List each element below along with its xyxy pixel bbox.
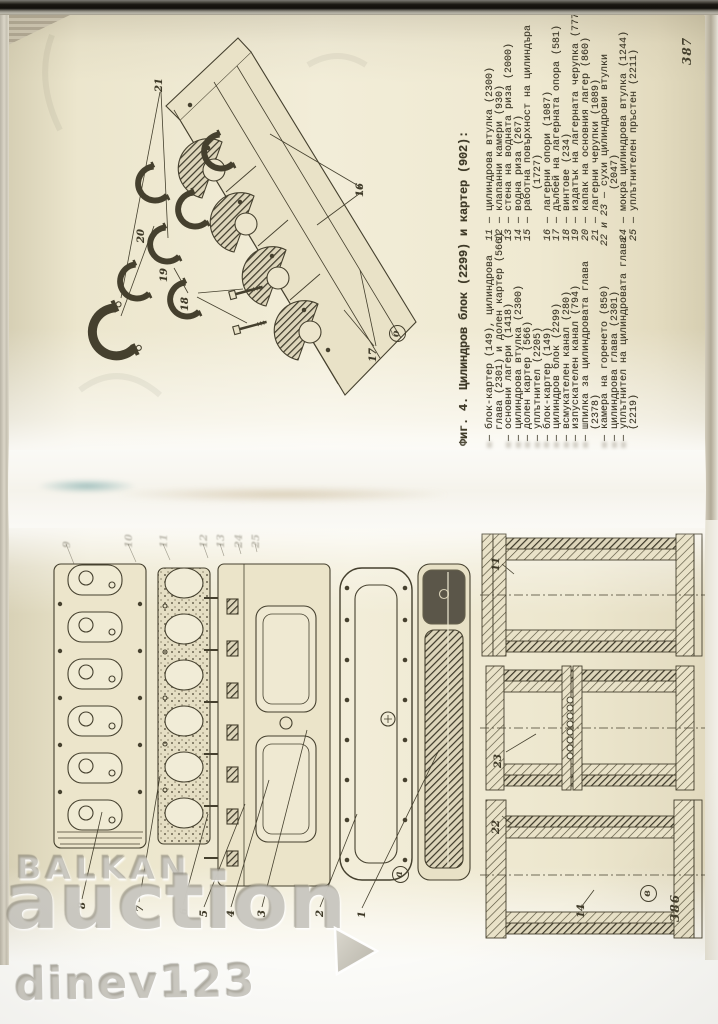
figure-callout: 19 <box>159 268 170 282</box>
legend-line: 22 и 23 — сухи цилиндрови втулки <box>601 13 611 246</box>
figure-callout: 1 <box>357 911 368 918</box>
page-386-content: 87654321 9101112132425 11232214 а в 386 <box>8 528 706 962</box>
figure-callout: 12 <box>199 534 210 548</box>
figure-callout: 24 <box>234 534 245 548</box>
figure-callout: 11 <box>491 557 502 571</box>
book-photo: Фиг. 4. Цилиндров блок (2299) и картер (… <box>0 0 718 1024</box>
figure-callout: 8 <box>77 902 88 909</box>
page-number-386: 386 <box>668 894 682 922</box>
figure-callout: 7 <box>135 905 146 912</box>
page-stack-right-edge <box>705 15 718 520</box>
figure-callout: 23 <box>493 754 504 768</box>
figure-callout: 9 <box>62 541 73 548</box>
subfigure-label-b: б <box>389 325 406 342</box>
figure-callout: 14 <box>576 904 587 918</box>
legend-col-1: — блок-картер (149), цилиндроваглава (23… <box>486 236 640 448</box>
figure-callout: 25 <box>251 534 262 548</box>
page-stack-right-edge-lower <box>705 520 718 960</box>
figure-callout: 20 <box>136 229 147 243</box>
figure-callout: 11 <box>159 534 170 548</box>
book-page-387: Фиг. 4. Цилиндров блок (2299) и картер (… <box>8 13 706 450</box>
figure-callout: 6 <box>179 908 190 915</box>
book-page-386: 87654321 9101112132425 11232214 а в 386 <box>8 528 706 962</box>
legend-col-2: 11 — цилиндрова втулка (2300)12 — клапан… <box>486 13 640 246</box>
figure-callout: 17 <box>368 348 379 362</box>
page-fold-glare <box>8 438 706 540</box>
figure-callout: 22 <box>491 820 502 834</box>
figure-callout: 21 <box>154 78 165 92</box>
figure-callout: 10 <box>124 534 135 548</box>
figure-callout: 3 <box>257 910 268 917</box>
page-number-387: 387 <box>680 37 694 65</box>
figure-callout: 2 <box>315 910 326 917</box>
fold-tan-streak <box>118 487 448 502</box>
legend-line: 25 — уплътнителен пръстен (2211) <box>630 13 640 246</box>
book-top-edge <box>0 0 718 15</box>
figure-callout: 18 <box>180 297 191 311</box>
fold-teal-streak <box>38 479 136 493</box>
subfigure-label-v: в <box>640 885 657 902</box>
figure-b-exploded-block-drawing <box>8 13 460 450</box>
page-stack-left-edge <box>0 15 9 965</box>
figure-callout: 16 <box>355 183 366 197</box>
legend-line: 15 — работна повърхност на цилиндъра <box>524 13 534 246</box>
figure-a-exploded-engine-drawing <box>8 528 478 962</box>
figure-caption: Фиг. 4. Цилиндров блок (2299) и картер (… <box>457 16 471 446</box>
watermark-username: dinev123 <box>14 954 257 1011</box>
figure-callout: 13 <box>216 534 227 548</box>
figure-callout: 5 <box>199 910 210 917</box>
subfigure-label-a: а <box>392 866 409 883</box>
page-387-content: Фиг. 4. Цилиндров блок (2299) и картер (… <box>8 13 706 450</box>
figure-callout: 4 <box>226 910 237 917</box>
legend-line: (2219) <box>630 236 640 448</box>
